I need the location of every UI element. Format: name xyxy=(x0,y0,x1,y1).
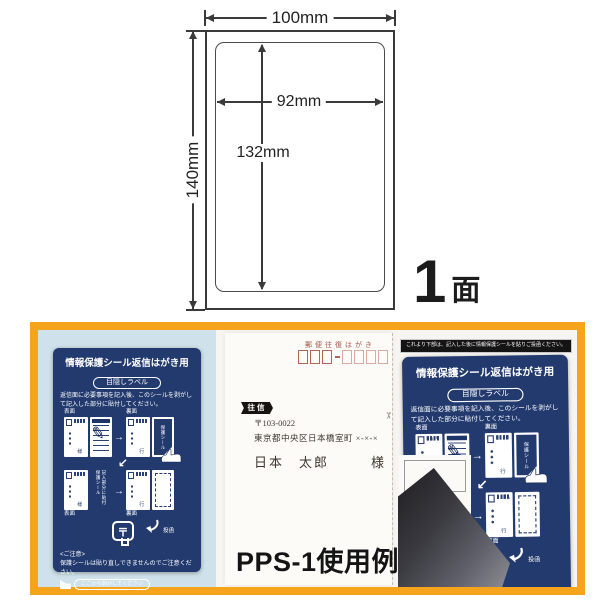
postmark-icon: 〒 xyxy=(112,521,134,541)
mini-postcard: 様 xyxy=(64,417,88,457)
arrow-left-icon xyxy=(206,14,214,22)
curved-arrow-icon xyxy=(144,519,160,534)
postmark-tab xyxy=(121,538,129,546)
step2-peel: 行 保護シール xyxy=(485,433,539,479)
mini-postcard: 様 xyxy=(64,470,88,510)
entry-dots xyxy=(130,484,134,499)
dashed-area xyxy=(155,473,171,507)
postal-digit-box xyxy=(378,350,388,364)
stamp-box xyxy=(66,419,72,426)
postal-digit-box xyxy=(354,350,364,364)
mini-seal: 保護シール xyxy=(514,433,539,478)
stamp-box xyxy=(418,437,425,445)
stamp-box xyxy=(128,419,134,426)
seal-card-left: 情報保護シール返信はがき用 目隠しラベル 返信面に必要事項を記入後、このシールを… xyxy=(53,348,201,572)
mini-postcard: 行 xyxy=(126,470,150,510)
mini-addressee: 行 xyxy=(501,530,507,536)
mini-addressee: 様 xyxy=(77,503,82,508)
postal-code-text: 〒103-0022 xyxy=(254,417,295,429)
stamp-box xyxy=(128,472,134,479)
step4-result: 行 xyxy=(486,492,540,538)
postal-digit-box xyxy=(310,350,320,364)
entry-dots xyxy=(130,431,134,446)
notice: <ご注意> 保護シールは貼り直しできませんのでご注意ください。 xyxy=(60,551,194,577)
mini-seal-applied: 記入部分に貼付 保護シール xyxy=(90,470,112,510)
pen-icon: ✎ xyxy=(90,424,106,443)
arrow-up-icon xyxy=(189,31,197,39)
outbound-ribbon: 往信 xyxy=(241,402,273,414)
seal-vertical-text: 保護シール xyxy=(523,441,530,469)
notice-text: 保護シールは貼り直しできませんのでご注意ください。 xyxy=(60,560,194,577)
postal-code-strip xyxy=(74,419,86,423)
entry-dots xyxy=(490,508,495,525)
postal-hyphen xyxy=(335,356,340,358)
step4-label: 裏面 xyxy=(126,512,137,518)
post-label: 投函 xyxy=(528,555,540,564)
arrow-left-icon xyxy=(217,98,225,106)
step2-label: 裏面 xyxy=(485,426,497,432)
mini-addressee: 様 xyxy=(77,450,82,455)
step2-peel: 行 保護シール xyxy=(126,417,174,457)
badge-hidden-label: 目隠しラベル xyxy=(93,377,161,389)
dim-tick xyxy=(394,10,396,26)
arrow-up-icon xyxy=(258,44,266,52)
label-width-label: 92mm xyxy=(272,93,326,111)
arrow-down-icon xyxy=(258,282,266,290)
addressee-honorific: 様 xyxy=(371,452,386,471)
dashed-area xyxy=(518,496,536,534)
arrow-right-icon: → xyxy=(114,432,124,443)
mini-seal: 保護シール xyxy=(152,417,174,457)
apply-banner: これより下部は、記入した後に情報保護シールを貼りご投函ください。 xyxy=(400,339,572,353)
postal-digit-box xyxy=(342,350,352,364)
arrow-right-icon xyxy=(375,98,383,106)
mini-addressee: 行 xyxy=(139,450,144,455)
seal-card-title: 情報保護シール返信はがき用 xyxy=(410,363,560,381)
address-text: 東京都中央区日本橋室町 ×-×-× xyxy=(254,432,378,444)
mini-blank xyxy=(152,470,174,510)
post-step: 〒 投函 xyxy=(60,519,194,549)
step1-label: 表面 xyxy=(415,427,427,433)
arrow-right-icon: → xyxy=(114,486,124,497)
postal-code-strip xyxy=(496,435,510,440)
mini-postcard: 行 xyxy=(126,417,150,457)
arrow-right-icon xyxy=(386,14,394,22)
applied-vertical-text: 記入部分に貼付 保護シール xyxy=(95,470,107,510)
postal-digit-box xyxy=(298,350,308,364)
entry-dots xyxy=(68,484,72,499)
addressee-row: 日本 太郎 様 xyxy=(254,452,386,471)
postal-code-strip xyxy=(136,419,148,423)
postal-digit-box xyxy=(366,350,376,364)
label-outline xyxy=(215,42,385,292)
step1-label: 表面 xyxy=(64,410,75,416)
arrow-downleft-icon: ↙ xyxy=(118,456,128,470)
product-spec-image: 100mm 140mm 92mm 132mm 1 面 情報保護シール返信はがき用… xyxy=(0,0,600,600)
stamp-box xyxy=(487,436,494,444)
sheet-width-label: 100mm xyxy=(267,8,334,28)
faces-number: 1 xyxy=(413,254,446,309)
postal-code-strip xyxy=(136,472,148,476)
peel-corner-icon xyxy=(60,580,71,589)
sheet-height-label: 140mm xyxy=(183,137,203,204)
postal-code-strip xyxy=(497,495,511,500)
label-height-label: 132mm xyxy=(231,144,294,162)
dim-tick xyxy=(186,309,205,311)
step1-write: 様 ✎ xyxy=(64,417,112,457)
postal-code-boxes xyxy=(298,350,390,364)
stamp-box xyxy=(66,472,72,479)
step3-apply: 様 記入部分に貼付 保護シール xyxy=(64,470,112,510)
peel-hint-row: ここから剥がしてください xyxy=(60,579,194,589)
peel-hint-pill: ここから剥がしてください xyxy=(74,579,150,589)
hand-icon xyxy=(523,467,548,484)
mini-postcard: 行 xyxy=(486,493,514,538)
post-label: 投函 xyxy=(163,526,174,534)
postal-code-strip xyxy=(427,436,441,441)
step3-label: 表面 xyxy=(64,512,75,518)
postal-code-strip xyxy=(74,472,86,476)
mini-addressee: 行 xyxy=(500,470,506,476)
seal-card-instructions: 返信面に必要事項を記入後、このシールを剥がして記入した部分に貼付してください。 xyxy=(60,392,194,409)
usage-caption: PPS-1使用例 xyxy=(236,540,399,579)
entry-dots xyxy=(68,431,72,446)
notice-title: <ご注意> xyxy=(60,551,194,560)
badge-hidden-label: 目隠しラベル xyxy=(447,388,523,403)
mini-blank xyxy=(515,492,540,537)
seal-card-instructions: 返信面に必要事項を記入後、このシールを剥がして記入した部分に貼付してください。 xyxy=(411,404,561,426)
mini-form: ✎ xyxy=(90,417,112,457)
arrow-downleft-icon: ↙ xyxy=(476,477,487,493)
scissors-icon: ✂ xyxy=(382,412,393,420)
curved-arrow-icon xyxy=(507,547,525,564)
step2-label: 裏面 xyxy=(126,410,137,416)
addressee-name: 日本 太郎 xyxy=(254,452,329,471)
entry-dots xyxy=(490,449,495,466)
faces-unit: 面 xyxy=(451,277,480,309)
mini-postcard: 行 xyxy=(485,433,513,478)
seal-card-title: 情報保護シール返信はがき用 xyxy=(60,355,194,369)
hand-icon xyxy=(160,448,182,463)
postal-digit-box xyxy=(322,350,332,364)
arrow-down-icon xyxy=(189,301,197,309)
seal-vertical-text: 保護シール xyxy=(160,425,166,450)
faces-count: 1 面 xyxy=(413,254,480,309)
stamp-box xyxy=(488,495,495,503)
arrow-right-icon: → xyxy=(472,450,483,462)
mini-addressee: 行 xyxy=(139,503,144,508)
photo-usage-example: 郵便往復はがき 往信 〒103-0022 東京都中央区日本橋室町 ×-×-× 日… xyxy=(216,330,577,587)
usage-steps: 表面 裏面 様 ✎ → xyxy=(60,410,194,518)
postcard-header: 郵便往復はがき xyxy=(305,340,375,350)
badge-row: 目隠しラベル xyxy=(410,381,560,403)
step4-result: 行 xyxy=(126,470,174,510)
dim-line-label-height xyxy=(261,45,263,289)
badge-row: 目隠しラベル xyxy=(60,371,194,389)
